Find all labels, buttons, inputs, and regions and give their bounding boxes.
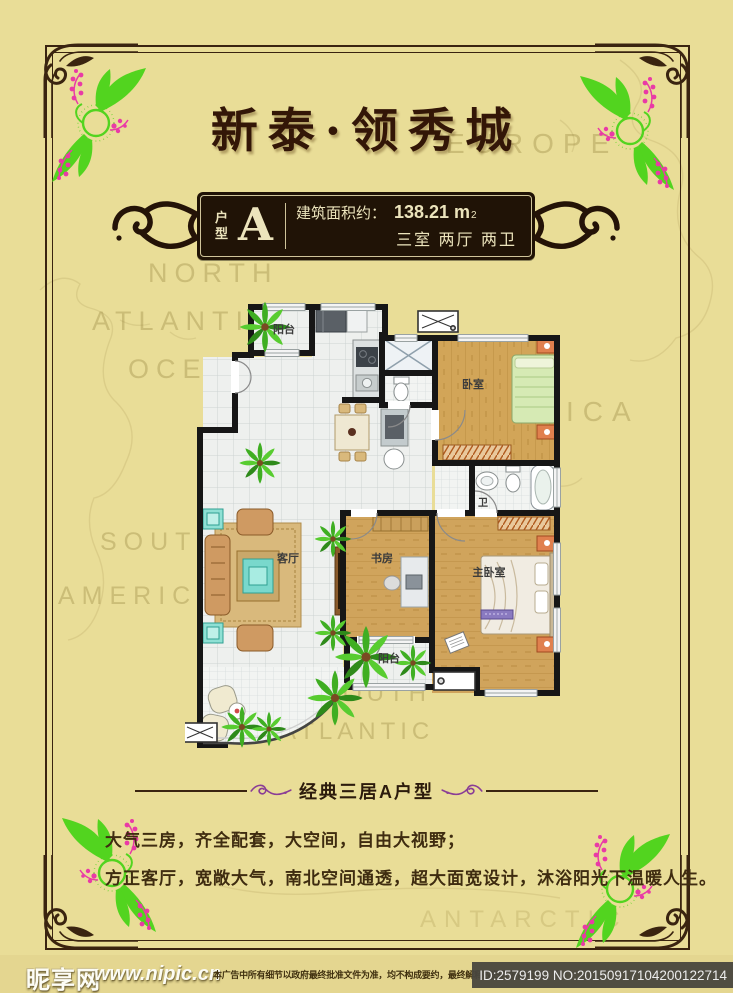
poster: NORTH ATLANTIC OCEAN EUROPE AFRICA SOUTH… — [0, 0, 733, 993]
divider-line — [486, 790, 598, 792]
project-title: 新泰·领秀城 — [0, 92, 733, 161]
watermark-site-name: 昵享网 — [26, 960, 101, 993]
area-label: 建筑面积约： — [296, 202, 386, 223]
image-id-badge: ID:2579199 NO:20150917104200122714 — [472, 962, 733, 988]
unit-type-label: 户 型 — [215, 210, 228, 243]
floor-plan: 阳台 卧室 卫 客厅 书房 主卧室 阳台 — [185, 295, 565, 765]
floor-plan-graphic: 阳台 卧室 卫 客厅 书房 主卧室 阳台 — [185, 295, 565, 765]
watermark-site-url: www.nipic.cn — [94, 963, 221, 986]
room-label-balcony-top: 阳台 — [273, 322, 295, 336]
room-label-bathroom: 卫 — [478, 497, 488, 509]
map-label: NORTH — [148, 258, 279, 289]
bedroom-rug — [443, 445, 511, 460]
swirl-ornament-icon — [440, 782, 484, 800]
divider-label: 经典三居A户型 — [299, 778, 434, 804]
description-line: 大气三房，齐全配套，大空间，自由大视野； — [105, 826, 717, 851]
description-line: 方正客厅，宽敞大气，南北空间通透，超大面宽设计，沐浴阳光下温暖人生。 — [105, 864, 717, 889]
unit-badge: 户 型 A 建筑面积约： 138.21 m 2 三室 两厅 两卫 — [197, 192, 535, 260]
unit-letter: A — [238, 198, 273, 251]
room-label-bedroom: 卧室 — [462, 377, 484, 391]
area-superscript: 2 — [471, 210, 477, 221]
unit-badge-inner: 户 型 A 建筑面积约： 138.21 m 2 三室 两厅 两卫 — [200, 195, 532, 257]
map-label: ANTARCTIC — [420, 906, 628, 934]
scroll-flourish-icon — [534, 198, 620, 254]
room-label-master: 主卧室 — [473, 565, 506, 579]
toilet-icon — [394, 377, 409, 401]
room-label-balcony-bottom: 阳台 — [378, 651, 400, 665]
divider-line — [135, 790, 247, 792]
scroll-flourish-icon — [112, 198, 198, 254]
unit-specs: 建筑面积约： 138.21 m 2 三室 两厅 两卫 — [286, 202, 531, 250]
room-label-living: 客厅 — [276, 551, 299, 565]
layout-summary: 三室 两厅 两卫 — [296, 226, 517, 250]
unit-badge-row: 户 型 A 建筑面积约： 138.21 m 2 三室 两厅 两卫 — [0, 192, 733, 262]
section-divider: 经典三居A户型 — [0, 778, 733, 804]
area-line: 建筑面积约： 138.21 m 2 — [296, 202, 517, 223]
wash-basin-icon — [384, 449, 404, 469]
room-label-study: 书房 — [371, 551, 393, 565]
footer-bar: 昵享网 www.nipic.cn 本广告中所有细节以政府最终批准文件为准，均不构… — [0, 955, 733, 993]
swirl-ornament-icon — [249, 782, 293, 800]
washer-icon — [381, 409, 408, 446]
area-value: 138.21 m — [394, 202, 470, 223]
description: 大气三房，齐全配套，大空间，自由大视野； 方正客厅，宽敞大气，南北空间通透，超大… — [105, 826, 717, 902]
